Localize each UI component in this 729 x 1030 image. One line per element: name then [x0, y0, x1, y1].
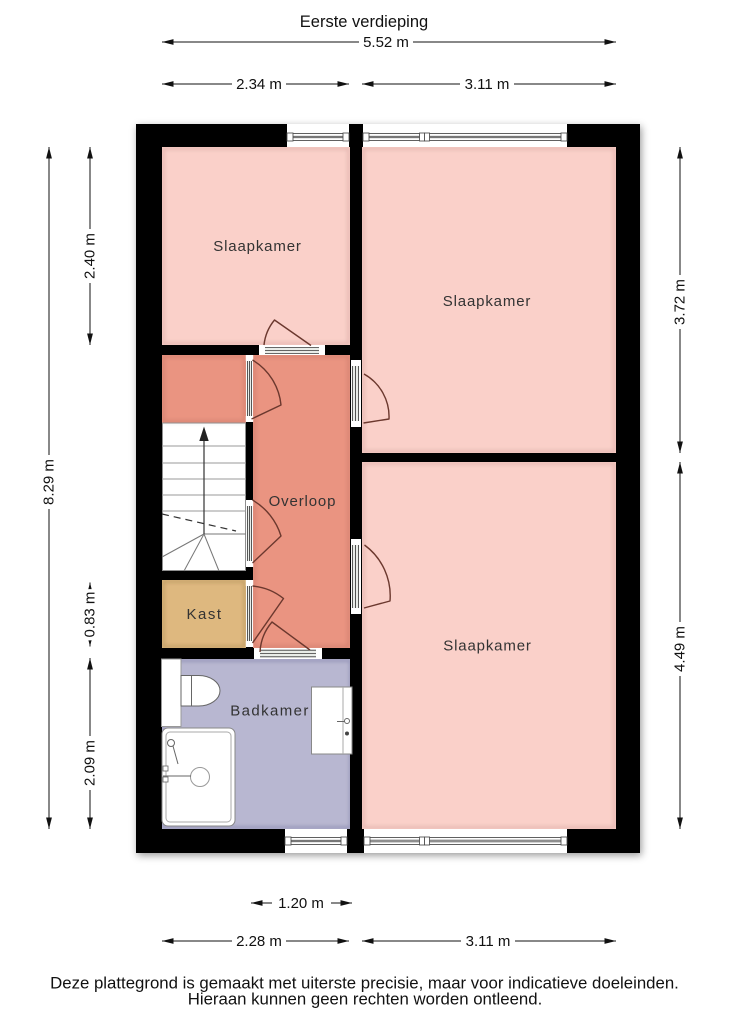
svg-text:Slaapkamer: Slaapkamer: [443, 293, 532, 310]
svg-text:Slaapkamer: Slaapkamer: [443, 638, 532, 655]
svg-text:Badkamer: Badkamer: [230, 703, 310, 720]
svg-text:1.20 m: 1.20 m: [278, 895, 324, 912]
svg-text:2.09 m: 2.09 m: [82, 740, 99, 786]
svg-text:3.11 m: 3.11 m: [466, 933, 511, 950]
svg-text:Eerste verdieping: Eerste verdieping: [300, 13, 428, 31]
svg-text:Slaapkamer: Slaapkamer: [213, 238, 302, 255]
svg-text:Overloop: Overloop: [269, 493, 337, 510]
svg-text:0.83 m: 0.83 m: [82, 592, 99, 638]
svg-text:2.40 m: 2.40 m: [82, 233, 99, 279]
svg-text:5.52 m: 5.52 m: [363, 34, 409, 51]
svg-text:4.49 m: 4.49 m: [672, 626, 689, 672]
svg-text:Hieraan kunnen geen rechten wo: Hieraan kunnen geen rechten worden ontle…: [188, 990, 543, 1009]
svg-text:2.34 m: 2.34 m: [236, 76, 282, 93]
svg-text:8.29 m: 8.29 m: [41, 459, 58, 505]
svg-text:Kast: Kast: [186, 606, 222, 623]
svg-text:2.28 m: 2.28 m: [236, 933, 282, 950]
svg-text:3.72 m: 3.72 m: [672, 279, 689, 325]
svg-text:3.11 m: 3.11 m: [465, 76, 510, 93]
